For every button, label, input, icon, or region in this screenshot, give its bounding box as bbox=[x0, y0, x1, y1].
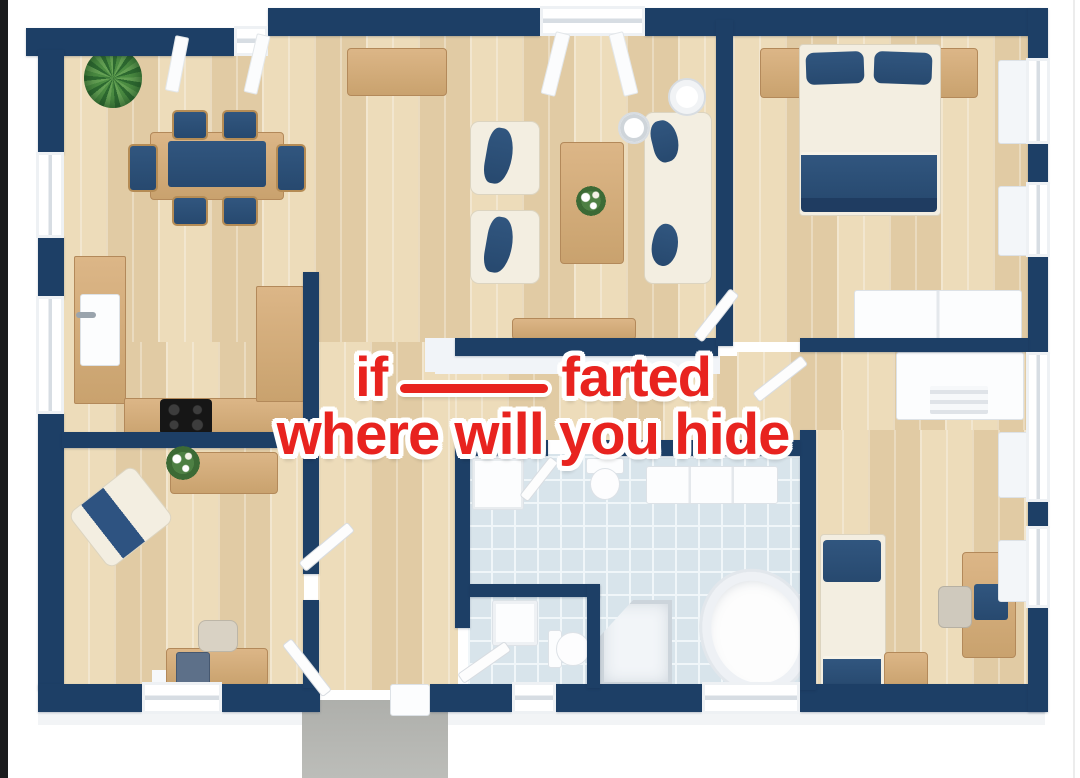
wall-wc-east bbox=[587, 584, 600, 688]
toilet-bowl bbox=[590, 468, 620, 500]
floorplan-meme-image: iffarted where will you hide bbox=[0, 0, 1080, 778]
dining-table-runner bbox=[168, 141, 266, 187]
dining-chair bbox=[172, 196, 208, 226]
wc-toilet-bowl bbox=[556, 632, 590, 666]
meme-text-line1: iffarted bbox=[26, 349, 1040, 405]
table-flowers bbox=[576, 186, 606, 216]
window-bottom-bathtub bbox=[702, 682, 800, 714]
wall-bottom-3 bbox=[430, 684, 512, 712]
window-right-bedroom2 bbox=[1026, 526, 1050, 608]
bed-blanket bbox=[801, 152, 937, 203]
meme-text-if: if bbox=[355, 345, 387, 408]
floor-lamp bbox=[668, 78, 706, 116]
dining-chair bbox=[276, 144, 306, 192]
dining-chair bbox=[222, 110, 258, 140]
wall-right-2 bbox=[1028, 142, 1048, 184]
sideboard bbox=[347, 48, 447, 96]
wall-top-main bbox=[268, 8, 540, 36]
potted-plant bbox=[84, 48, 142, 108]
window-bottom-office bbox=[142, 682, 222, 714]
side-table bbox=[618, 112, 650, 144]
kitchen-faucet-icon bbox=[76, 312, 96, 318]
bedroom1-dresser bbox=[854, 290, 1022, 340]
nightstand bbox=[884, 652, 928, 688]
wall-bottom-2 bbox=[222, 684, 320, 712]
window-left-dining bbox=[36, 152, 64, 238]
wall-bottom-1 bbox=[38, 684, 142, 712]
wall-bathroom-west bbox=[455, 440, 470, 628]
left-edge-bar bbox=[0, 0, 8, 778]
wall-bottom-4 bbox=[556, 684, 702, 712]
meme-text-line2: where will you hide bbox=[26, 406, 1040, 464]
dining-chair bbox=[128, 144, 158, 192]
wall-right-3 bbox=[1028, 255, 1048, 354]
wall-wc-north bbox=[470, 584, 600, 597]
bed-pillow bbox=[805, 51, 864, 85]
wall-right-1 bbox=[1028, 8, 1048, 60]
wc-vanity-sink bbox=[492, 600, 538, 646]
window-right-bedroom1-a bbox=[1026, 58, 1050, 144]
bed-footboard bbox=[801, 198, 937, 212]
meme-text-farted: farted bbox=[561, 345, 711, 408]
wall-bottom-5 bbox=[800, 684, 1045, 712]
window-bottom-bathroom bbox=[512, 682, 556, 714]
wall-left-1 bbox=[38, 50, 64, 154]
window-right-bedroom1-b bbox=[1026, 182, 1050, 257]
tv-console bbox=[512, 318, 636, 340]
wall-top-right bbox=[645, 8, 1040, 36]
front-door-frame bbox=[390, 684, 430, 716]
wall-bathroom-bedroom2 bbox=[800, 430, 816, 690]
wall-right-5 bbox=[1028, 606, 1048, 712]
wall-right-4 bbox=[1028, 500, 1048, 528]
office-desk-chair bbox=[198, 620, 238, 652]
bed-pillow bbox=[873, 51, 932, 85]
desk-chair bbox=[938, 586, 972, 628]
wall-left-2 bbox=[38, 236, 64, 298]
bed-pillow bbox=[823, 540, 881, 582]
dining-chair bbox=[172, 110, 208, 140]
blank-underline bbox=[400, 384, 548, 393]
right-edge-line bbox=[1073, 0, 1075, 778]
bed-blanket bbox=[823, 656, 881, 687]
dining-chair bbox=[222, 196, 258, 226]
bath-bench-cabinet bbox=[646, 466, 778, 504]
